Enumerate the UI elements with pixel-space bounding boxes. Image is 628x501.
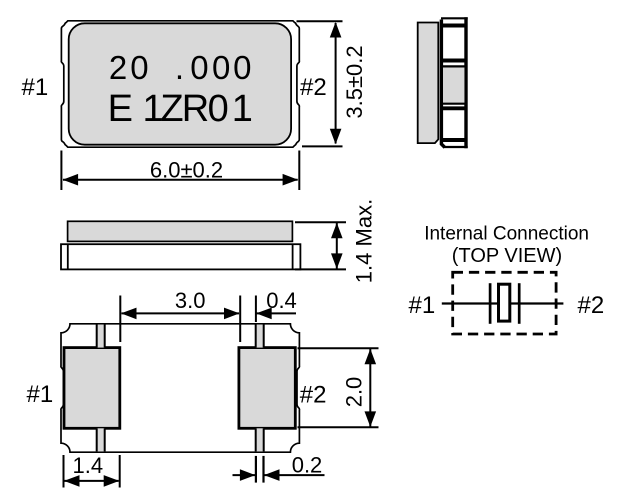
svg-text:Internal Connection: Internal Connection — [424, 224, 589, 245]
svg-text:#2: #2 — [300, 74, 327, 101]
svg-text:#2: #2 — [578, 292, 605, 319]
svg-text:#1: #1 — [409, 292, 436, 319]
svg-text:0.4: 0.4 — [266, 288, 297, 313]
svg-text:1.4: 1.4 — [73, 453, 104, 478]
svg-text:3.0: 3.0 — [175, 288, 206, 313]
svg-text:E1ZR01: E1ZR01 — [108, 88, 253, 130]
svg-text:0.2: 0.2 — [292, 453, 323, 478]
svg-text:#1: #1 — [22, 74, 49, 101]
svg-text:#2: #2 — [300, 382, 327, 409]
svg-text:#1: #1 — [27, 381, 54, 408]
svg-text:2.0: 2.0 — [342, 377, 367, 408]
svg-text:(TOP VIEW): (TOP VIEW) — [452, 245, 562, 267]
svg-text:3.5±0.2: 3.5±0.2 — [342, 45, 367, 118]
svg-text:6.0±0.2: 6.0±0.2 — [150, 158, 223, 183]
svg-text:20.000: 20.000 — [109, 49, 252, 86]
svg-text:1.4 Max.: 1.4 Max. — [352, 199, 377, 283]
